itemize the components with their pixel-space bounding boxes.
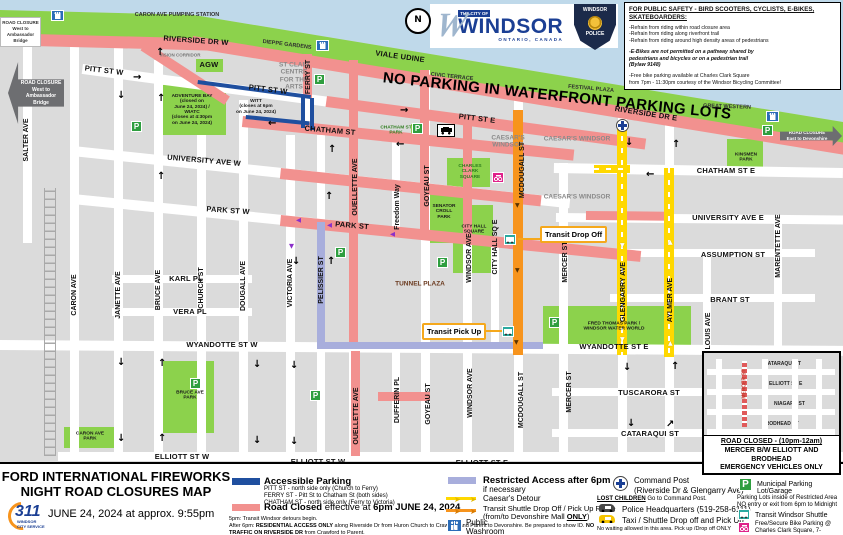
- command-l2: (Riverside Dr & Glengarry Ave): [634, 486, 744, 496]
- parking-icon: P: [437, 257, 448, 268]
- detour-arrow-marker: ▲: [668, 240, 673, 246]
- map-title-line2: NIGHT ROAD CLOSURES MAP: [0, 484, 232, 499]
- inset-vertical-street: [716, 359, 722, 437]
- inset-vertical-street: [816, 359, 822, 437]
- detour-arrow-marker: ▼: [620, 243, 625, 249]
- taxi-icon: [599, 515, 615, 523]
- lost-children-note: LOST CHILDREN Go to Command Post.: [597, 496, 707, 502]
- map-label: GLENGARRY AVE: [620, 262, 628, 322]
- inset-caption: ROAD CLOSED - (10pm-12am)MERCER B/W ELLI…: [704, 435, 839, 473]
- map-label: VERA PL: [173, 308, 207, 316]
- transit-shuttle-stop-icon: [502, 326, 514, 337]
- inset-street-label: NIAGARA ST: [774, 401, 805, 407]
- command-l1: Command Post: [634, 476, 744, 486]
- note-after-6pm: After 6pm: RESIDENTIAL ACCESS ONLY along…: [229, 523, 611, 535]
- municipal-parking-icon: P: [739, 478, 752, 491]
- map-label: CHARLES CLARK SQUARE: [458, 164, 481, 180]
- map-label: BRANT ST: [710, 296, 750, 304]
- map-label: PELISSIER ST: [318, 256, 326, 303]
- transit-shuttle-label: Transit Windsor Shuttle: [755, 512, 828, 519]
- list-line: EMERGENCY VEHICLES ONLY: [704, 464, 839, 473]
- restricted-direction-marker: ◀: [327, 222, 332, 229]
- shuttle-arrow-marker: ▼: [515, 268, 520, 274]
- tuscarora-st-w: [378, 392, 430, 401]
- taxi-note: No waiting allowed in this area. Pick up…: [597, 526, 731, 532]
- one-way-arrow-up: ↑: [157, 94, 165, 104]
- one-way-arrow-up: ↑: [672, 140, 680, 150]
- parking-note: Parking Lots inside of Restricted Area N…: [737, 495, 837, 509]
- bike-parking-l1: Free/Secure Bike Parking @: [755, 521, 843, 528]
- detour-arrow-marker: ▼: [620, 337, 625, 343]
- police-headquarters-label: Police Headquarters (519-258-6111): [622, 505, 751, 514]
- transit-drop-off-callout-connector: [518, 238, 540, 240]
- one-way-arrow-left: ←: [268, 119, 276, 129]
- list-line: BRODHEAD: [704, 456, 839, 465]
- map-label: CATARAQUI ST: [621, 430, 679, 438]
- map-label: LOUIS AVE: [705, 313, 713, 350]
- inset-vertical-street: [792, 359, 798, 437]
- wyandotte-restricted: [317, 342, 543, 349]
- map-label: DUFFERIN PL: [394, 377, 402, 423]
- sign-line: West to Ambassador: [18, 87, 64, 100]
- one-way-arrow-right: →: [400, 106, 408, 116]
- road-closed-swatch: [232, 504, 260, 511]
- map-label: CHATHAM ST PARK: [380, 126, 411, 137]
- one-way-arrow-up: ↑: [328, 145, 336, 155]
- bruce-ave: [154, 60, 163, 458]
- parking-icon: P: [335, 247, 346, 258]
- bike-parking-l2: Charles Clark Square, 7-11:30pm: [755, 528, 843, 535]
- list-line: -Free bike parking available at Charles …: [629, 73, 836, 80]
- map-label: CARON AVE PARK: [76, 432, 104, 443]
- after6-mid2: from Crawford to Parent.: [303, 530, 365, 535]
- city-logo-name: WINDSOR: [458, 17, 563, 37]
- command-post-label: Command Post (Riverside Dr & Glengarry A…: [634, 476, 744, 495]
- caesars-detour-swatch: ➤➤: [446, 497, 476, 500]
- badge-crest-icon: [588, 16, 602, 30]
- 311-subtitle: WINDSOR CITY SERVICE: [17, 520, 45, 530]
- safety-bullets: -Refrain from riding within road closure…: [629, 25, 836, 45]
- north-compass-icon: N: [405, 8, 431, 34]
- map-label: DOUGALL AVE: [240, 261, 248, 311]
- safety-title: FOR PUBLIC SAFETY - BIRD SCOOTERS, CYCLI…: [629, 6, 836, 22]
- map-label: JANETTE AVE: [115, 271, 123, 318]
- restricted-direction-marker: ▼: [289, 243, 294, 250]
- map-title: FORD INTERNATIONAL FIREWORKS NIGHT ROAD …: [0, 469, 232, 500]
- after6-pre: After 6pm:: [229, 523, 256, 529]
- map-label: ELLIOTT ST W: [155, 453, 209, 461]
- lost-children-rest: Go to Command Post.: [646, 496, 707, 502]
- list-line: -Refrain from riding within road closure…: [629, 25, 836, 32]
- parking-icon: P: [549, 317, 560, 328]
- transit-pick-up-callout: Transit Pick Up: [422, 323, 486, 340]
- map-label: MARENTETTE AVE: [775, 214, 783, 277]
- sign-line: West to Ambassador: [1, 26, 40, 38]
- map-title-line1: FORD INTERNATIONAL FIREWORKS: [0, 469, 232, 484]
- list-line: PITT ST - north side only (Church to Fer…: [264, 486, 395, 493]
- map-label: MERCER ST: [562, 241, 570, 282]
- list-line: ROAD CLOSED - (10pm-12am): [704, 438, 839, 447]
- shuttle-route-swatch: ➤➤: [446, 509, 476, 512]
- map-label: CAESAR'S WINDSOR: [544, 193, 611, 200]
- list-line: -Refrain from riding along riverfront tr…: [629, 31, 836, 38]
- parking-icon: P: [314, 74, 325, 85]
- safety-bike-parking-note: -Free bike parking available at Charles …: [629, 73, 836, 87]
- shuttle-arrow-marker: ▼: [515, 203, 520, 209]
- road-closed-bold1: Road Closed: [264, 502, 322, 513]
- one-way-arrow-down: ↓: [290, 437, 298, 447]
- bike-parking-icon: [492, 172, 504, 183]
- map-label: FERRY ST: [305, 60, 313, 94]
- one-way-arrow-down: ↓: [292, 257, 300, 267]
- lost-children-bold: LOST CHILDREN: [597, 496, 646, 502]
- one-way-arrow-up: ↑: [158, 359, 166, 369]
- washroom-l2: Washroom: [466, 527, 504, 535]
- transit-drop-off-callout: Transit Drop Off: [540, 226, 607, 243]
- transit-pick-up-callout-connector: [484, 330, 502, 332]
- washroom-icon: [766, 111, 779, 122]
- list-line: -Refrain from riding around high density…: [629, 38, 836, 45]
- one-way-arrow-down: ↓: [625, 138, 633, 148]
- road-closed-label: Road Closed effective at 6pm JUNE 24, 20…: [264, 502, 460, 513]
- map-label: CITY HALL SQ E: [492, 220, 500, 275]
- one-way-arrow-down: ↓: [117, 358, 125, 368]
- list-line: MERCER B/W ELLIOTT AND: [704, 447, 839, 456]
- one-way-arrow-down: ↓: [117, 91, 125, 101]
- shuttle-l2c: ): [587, 512, 590, 521]
- bike-parking-label: Free/Secure Bike Parking @ Charles Clark…: [755, 521, 843, 535]
- road-closures-map-image: CARON AVE PUMPING STATIONRIVERSIDE DR WD…: [0, 0, 843, 535]
- one-way-arrow-down: ↓: [253, 360, 261, 370]
- map-label: KINSMEN PARK: [735, 153, 757, 164]
- one-way-arrow-up: ↑: [325, 192, 333, 202]
- map-label: MERCER ST: [566, 371, 574, 412]
- parking-icon: P: [190, 378, 201, 389]
- map-label: SENATOR CROLL PARK: [432, 204, 455, 220]
- parking-note-l2: NO entry or exit from 6pm to Midnight: [737, 502, 837, 509]
- map-label: ASSUMPTION ST: [701, 251, 765, 259]
- washroom-icon: [447, 519, 462, 532]
- map-label: VISION CORRIDOR: [159, 52, 200, 57]
- command-post-icon: [616, 119, 629, 132]
- shuttle-l2b: ONLY: [567, 512, 587, 521]
- map-date: JUNE 24, 2024 at approx. 9:55pm: [48, 508, 214, 520]
- janette-ave: [114, 44, 123, 458]
- parking-icon: P: [310, 390, 321, 401]
- command-post-icon: [613, 476, 628, 491]
- accessible-parking-swatch: [232, 478, 260, 485]
- one-way-arrow-left: ←: [396, 140, 404, 150]
- map-label: CHURCH ST: [198, 267, 206, 308]
- one-way-arrow-ne: ↗: [666, 420, 674, 430]
- one-way-arrow-down: ↓: [253, 436, 261, 446]
- map-label: GOYEAU ST: [424, 165, 432, 206]
- list-line: from 7pm - 11:30pm courtesy of the Winds…: [629, 80, 836, 87]
- map-label: BRUCE AVE: [155, 270, 163, 310]
- one-way-arrow-down: ↓: [623, 363, 631, 373]
- map-label: FRED THOMAS PARK / WINDSOR WATER WORLD: [584, 322, 645, 333]
- list-line: pedestrians and bicycles or on a pedestr…: [629, 56, 836, 63]
- restricted-direction-marker: ◀: [296, 217, 301, 224]
- badge-top-text: WINDSOR: [574, 7, 616, 13]
- taxi-label: Taxi / Shuttle Drop off and Pick Up: [622, 516, 744, 525]
- one-way-arrow-down: ↓: [290, 361, 298, 371]
- map-label: OUELLETTE AVE: [353, 387, 361, 444]
- detour-arrow-marker: ▲: [668, 341, 673, 347]
- washroom-l1: Public: [466, 518, 504, 527]
- parking-icon: P: [131, 121, 142, 132]
- road-closure-topleft-sign: ROAD CLOSURE West to Ambassador Bridge: [0, 17, 41, 47]
- map-label: Freedom Way: [394, 184, 402, 230]
- list-line: (Bylaw 9148): [629, 62, 836, 69]
- map-label: CARON AVE PUMPING STATION: [135, 12, 219, 18]
- mercer-closure-inset-map: CATARAQUI STELLIOTT ST ENIAGARA STBRODHE…: [702, 351, 841, 475]
- safety-ebike-note: -E-Bikes are not permitted on a pathway …: [629, 49, 836, 69]
- one-way-arrow-up: ↑: [156, 48, 164, 58]
- map-label: AGW: [200, 61, 219, 69]
- one-way-arrow-down: ↓: [627, 419, 635, 429]
- mercer-st: [559, 163, 568, 458]
- road-closed-mid: effective at: [322, 502, 373, 513]
- map-label: BRUCE AVE PARK: [176, 391, 204, 402]
- 311-sub2: CITY SERVICE: [17, 525, 45, 530]
- map-label: CAESAR'S WINDSOR: [544, 135, 611, 142]
- public-washroom-label: Public Washroom: [466, 518, 504, 535]
- map-label: MCDOUGALL ST: [518, 372, 526, 428]
- parking-icon: P: [412, 123, 423, 134]
- police-car-icon: [599, 504, 615, 512]
- map-label: TUSCARORA ST: [618, 389, 680, 397]
- note-5pm: 5pm: Transit Windsor detours begin.: [229, 516, 317, 523]
- one-way-arrow-up: ↑: [157, 172, 165, 182]
- map-label: ADVENTURE BAY (closed on June 24, 2024) …: [172, 94, 213, 126]
- restricted-access-swatch: [448, 477, 476, 484]
- railroad-track: [44, 188, 56, 456]
- transit-shuttle-stop-icon: [504, 234, 516, 245]
- list-line: FERRY ST - Pitt St to Chatham St (both s…: [264, 493, 395, 500]
- parking-note-l1: Parking Lots inside of Restricted Area: [737, 495, 837, 502]
- map-label: WINDSOR AVE: [466, 233, 474, 282]
- one-way-arrow-up: ↑: [158, 434, 166, 444]
- map-label: GOYEAU ST: [425, 383, 433, 424]
- restricted-direction-marker: ◀: [390, 231, 395, 238]
- one-way-arrow-up: ↑: [327, 257, 335, 267]
- map-label: AYLMER AVE: [667, 278, 675, 322]
- transit-shuttle-icon: [738, 509, 750, 520]
- map-label: SALTER AVE: [23, 118, 31, 161]
- goyeau-st-n: [420, 70, 429, 235]
- caesars-detour-label: Caesar's Detour: [483, 494, 541, 503]
- map-label: WYANDOTTE ST W: [186, 341, 257, 349]
- map-label: WYANDOTTE ST E: [579, 343, 648, 351]
- parking-icon: P: [762, 125, 773, 136]
- one-way-arrow-right: →: [133, 73, 141, 83]
- sign-line: Bridge: [18, 100, 64, 107]
- inset-vertical-street: [762, 359, 768, 437]
- one-way-arrow-up: ↑: [671, 362, 679, 372]
- map-label: WINDSOR AVE: [467, 368, 475, 417]
- map-label: CARON AVE: [71, 274, 79, 315]
- aylmer-detour: [664, 168, 674, 357]
- map-label: TUNNEL PLAZA: [395, 280, 445, 287]
- one-way-arrow-down: ↓: [117, 434, 125, 444]
- one-way-arrow-left: ←: [646, 170, 654, 180]
- washroom-icon: [316, 40, 329, 51]
- municipal-parking-label: Municipal Parking Lot/Garage: [757, 481, 843, 495]
- map-label: OUELLETTE AVE: [352, 158, 360, 215]
- caron-ave: [70, 40, 79, 458]
- map-label: MCDOUGALL ST: [519, 142, 527, 198]
- map-label: VIALE UDINE: [375, 49, 425, 64]
- list-line: -E-Bikes are not permitted on a pathway …: [629, 49, 836, 56]
- washroom-icon: [51, 10, 64, 21]
- sign-line: Bridge: [1, 38, 40, 44]
- bike-parking-icon: [738, 522, 750, 533]
- shuttle-arrow-marker: ▼: [514, 340, 519, 346]
- restricted-access-sub: if necessary: [483, 485, 526, 494]
- badge-bottom-text: POLICE: [586, 31, 605, 37]
- tunnel-car-icon: [437, 124, 455, 137]
- map-label: CHATHAM ST E: [697, 167, 756, 175]
- map-label: UNIVERSITY AVE E: [692, 214, 764, 222]
- after6-bold1: RESIDENTIAL ACCESS ONLY: [256, 523, 333, 529]
- chatham-e-detour: [594, 165, 630, 173]
- inset-mercer-label: MERCER ST: [742, 369, 748, 398]
- map-label: WITT (closes at 6pm on June 24, 2024): [236, 99, 276, 115]
- public-safety-notice: FOR PUBLIC SAFETY - BIRD SCOOTERS, CYCLI…: [624, 2, 841, 90]
